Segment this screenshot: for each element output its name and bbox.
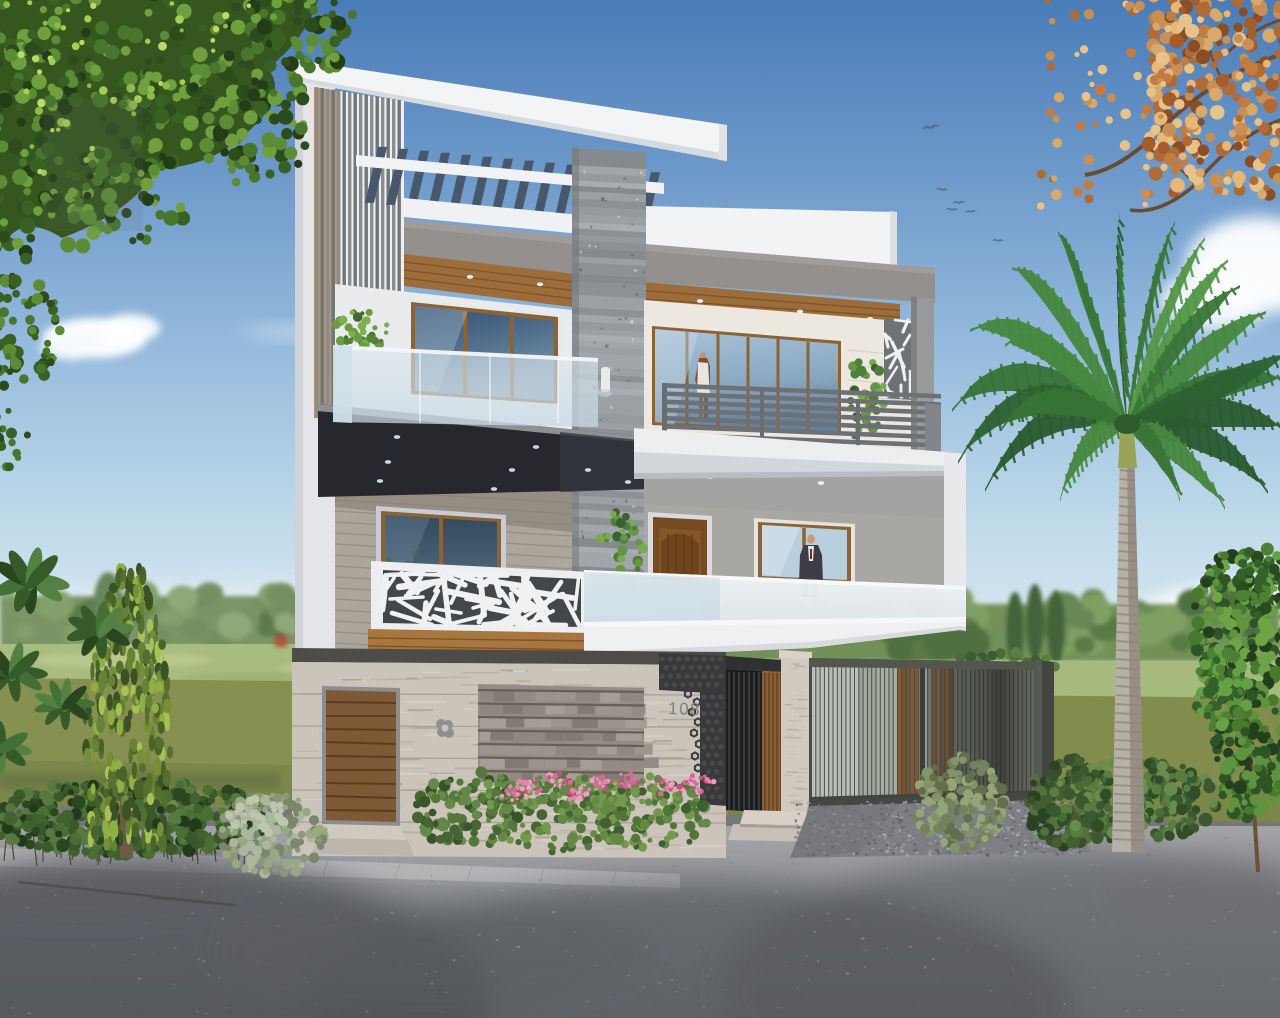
svg-text:108: 108 — [668, 699, 702, 719]
